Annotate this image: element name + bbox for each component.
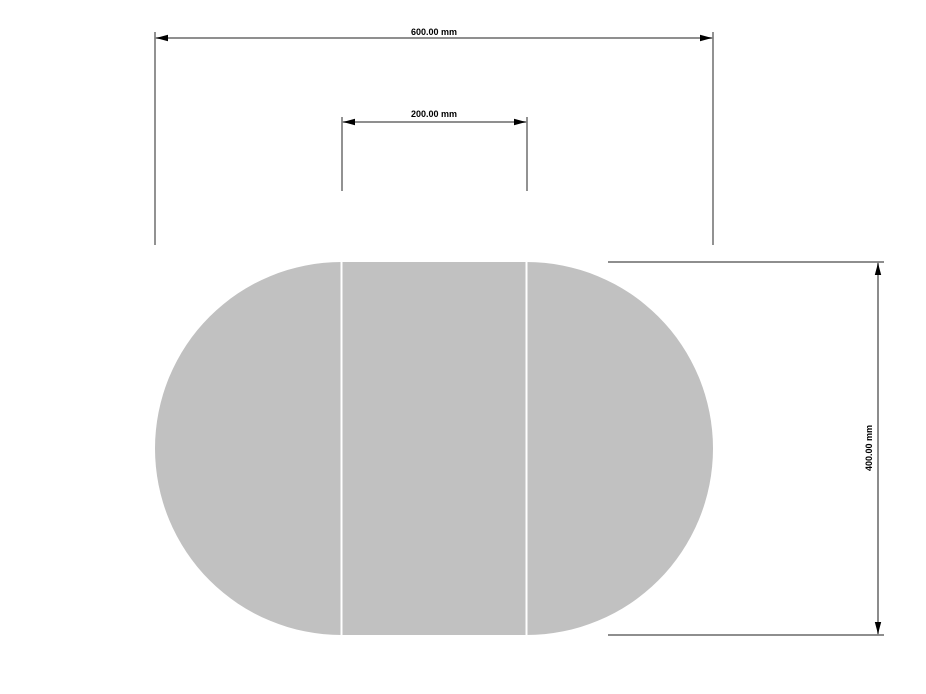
width-arrow-left-icon bbox=[156, 35, 168, 41]
height-arrow-down-icon bbox=[875, 622, 881, 634]
drawing-canvas: 600.00 mm 200.00 mm 400.00 mm bbox=[0, 0, 926, 694]
inner-dimension-label: 200.00 mm bbox=[411, 109, 457, 119]
height-arrow-up-icon bbox=[875, 263, 881, 275]
technical-drawing: 600.00 mm 200.00 mm 400.00 mm bbox=[0, 0, 926, 694]
width-arrow-right-icon bbox=[700, 35, 712, 41]
stadium-shape bbox=[155, 262, 713, 635]
inner-arrow-right-icon bbox=[514, 119, 526, 125]
inner-arrow-left-icon bbox=[343, 119, 355, 125]
dimension-width: 600.00 mm bbox=[155, 27, 713, 245]
dimension-inner-section: 200.00 mm bbox=[342, 109, 527, 191]
height-dimension-label: 400.00 mm bbox=[864, 425, 874, 471]
width-dimension-label: 600.00 mm bbox=[411, 27, 457, 37]
